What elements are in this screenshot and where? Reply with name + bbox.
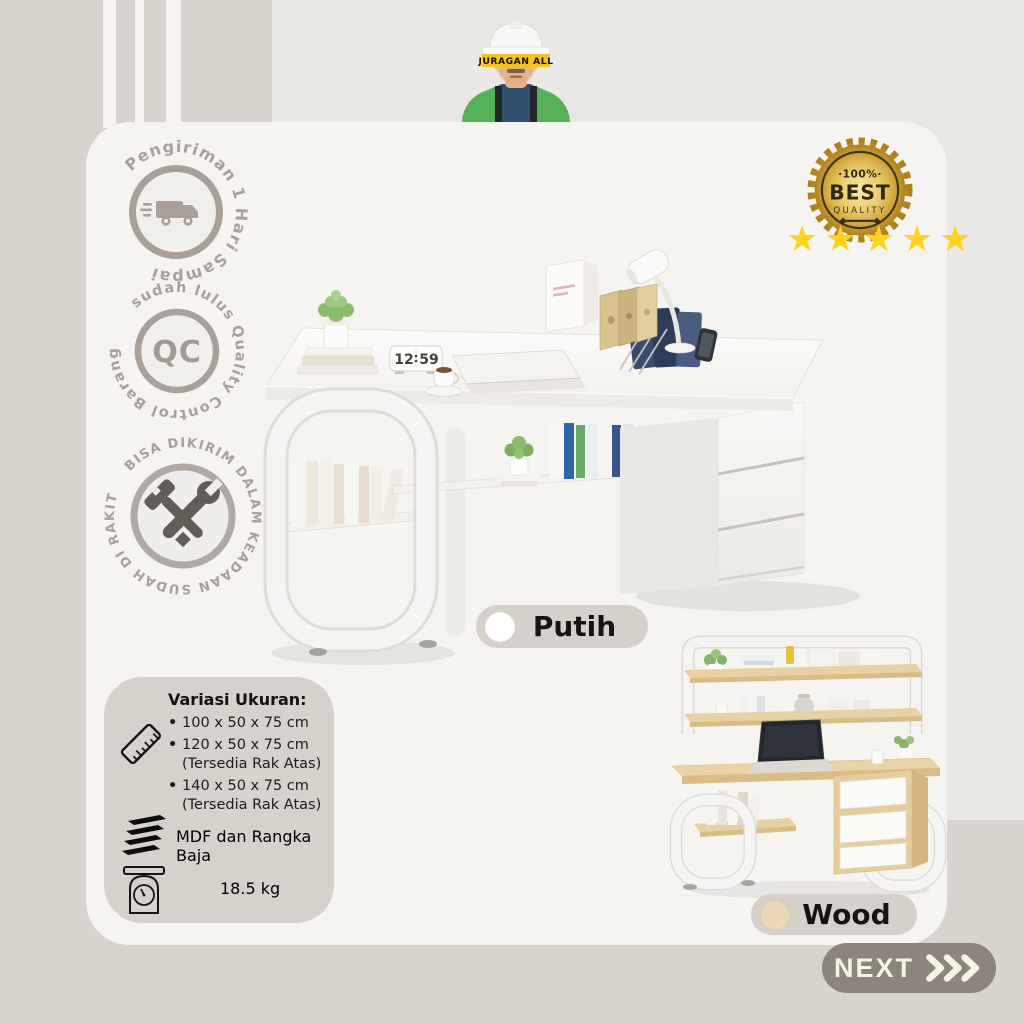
star-icon: ★	[863, 220, 895, 262]
sizes-title: Variasi Ukuran:	[168, 690, 307, 709]
decor-stripe	[103, 0, 116, 128]
product-photo-white-desk: 12 59	[248, 228, 860, 668]
weight-label: 18.5 kg	[220, 879, 280, 898]
badge-quality-control: sudah lulus Quality Control Barang QC	[102, 276, 252, 426]
wood-laptop	[748, 720, 834, 774]
product-photo-wood-desk	[658, 610, 958, 902]
white-color-swatch	[485, 612, 515, 642]
triple-chevron-right-icon	[924, 954, 984, 982]
badge-assembled: BISA DIKIRIM DALAM KEADAAN SUDAH DI RAKI…	[95, 428, 271, 604]
desk-laptop	[453, 350, 586, 394]
variant-label: Wood	[790, 898, 917, 931]
specs-panel: Variasi Ukuran: 100 x 50 x 75 cm 120 x 5…	[104, 677, 334, 923]
seal-line1: ·100%·	[838, 168, 882, 180]
decor-stripe	[166, 0, 181, 128]
next-button[interactable]: NEXT	[822, 943, 996, 993]
next-button-label: NEXT	[834, 955, 914, 982]
brand-logo: JURAGAN ALL	[438, 12, 594, 122]
brand-banner: JURAGAN ALL	[478, 54, 554, 67]
desk-left-shelf-books	[276, 459, 433, 533]
material-label: MDF dan Rangka Baja	[176, 827, 326, 865]
variant-label: Putih	[515, 610, 648, 643]
seal-line2: BEST	[829, 181, 891, 205]
decor-stripe	[135, 0, 144, 128]
size-option: 100 x 50 x 75 cm	[168, 714, 328, 733]
seal-line3: QUALITY	[833, 206, 886, 216]
wood-top-shelf	[684, 646, 922, 683]
variant-pill-wood[interactable]: Wood	[751, 894, 917, 935]
mdf-layers-icon	[120, 813, 170, 857]
svg-text:12: 12	[394, 352, 413, 368]
mascot-worker-icon	[462, 21, 570, 122]
desk-storage-box	[546, 260, 598, 332]
ruler-icon	[114, 713, 170, 777]
desk-flip-clock: 12 59	[390, 346, 442, 374]
badge-shipping: Pengiriman 1 Hari Sampai	[96, 132, 256, 292]
brand-name: JURAGAN ALL	[478, 56, 554, 67]
badge-qc-center: QC	[152, 335, 202, 370]
wood-drawer-cabinet	[834, 770, 928, 874]
star-icon: ★	[939, 220, 971, 262]
size-option: 120 x 50 x 75 cm(Tersedia Rak Atas)	[168, 736, 328, 774]
size-option: 140 x 50 x 75 cm(Tersedia Rak Atas)	[168, 777, 328, 815]
size-options-list: 100 x 50 x 75 cm 120 x 50 x 75 cm(Tersed…	[168, 711, 328, 815]
variant-pill-putih[interactable]: Putih	[476, 605, 648, 648]
svg-text:59: 59	[419, 352, 438, 368]
wood-color-swatch	[760, 900, 790, 930]
weighing-scale-icon	[120, 865, 168, 915]
star-icon: ★	[901, 220, 933, 262]
desk-drawer-cabinet	[620, 402, 804, 594]
desk-rear-leg	[445, 428, 465, 636]
